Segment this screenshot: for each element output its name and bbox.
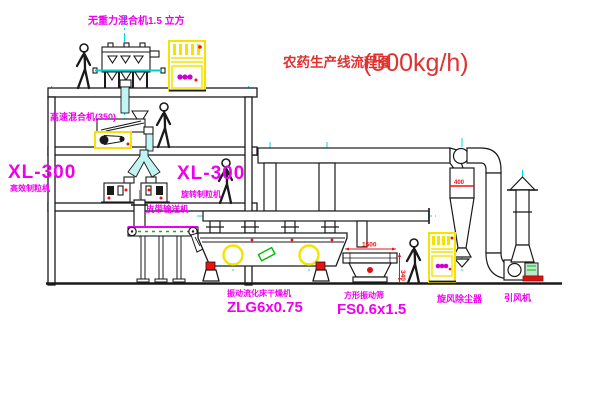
riser-right (319, 163, 335, 211)
eccentric-weight (367, 267, 373, 273)
control-cabinet-top (169, 41, 206, 91)
cad-flow-diagram: 400 1500 340 (0, 0, 600, 403)
label-screen-name: 方形振动筛 (344, 290, 384, 300)
label-granulator-mid-name: 旋转制粒机 (180, 189, 221, 199)
label-screen-model: FS0.6x1.5 (337, 301, 406, 318)
label-high-speed-mixer: 高速混合机(350) (50, 111, 116, 122)
label-belt-conveyor: 皮带输送机 (145, 204, 189, 214)
header-duct (258, 148, 450, 163)
feed-pipe (121, 87, 129, 113)
fan-base (523, 276, 543, 281)
screen-height-dim: 340 (399, 270, 406, 281)
label-granulator-left-name: 高效制粒机 (10, 183, 50, 193)
downcomer-pipe (486, 173, 501, 253)
diagram-svg: 400 1500 340 (0, 0, 600, 403)
stack-cap (510, 177, 535, 190)
indicator-dot (198, 45, 202, 49)
worker-figure-2 (157, 103, 170, 147)
label-cyclone: 旋风除尘器 (436, 293, 483, 304)
label-dryer-model: ZLG6x0.75 (227, 299, 303, 316)
control-cabinet-right (429, 233, 456, 282)
cyclone-flange-dim: 400 (454, 180, 465, 186)
riser-left (264, 163, 276, 211)
worker-figure-4 (407, 239, 420, 283)
diagram-capacity: (500kg/h) (363, 49, 469, 77)
belt-conveyor (128, 227, 205, 282)
gravity-free-mixer (93, 43, 165, 113)
label-dryer-name: 振动流化床干燥机 (227, 288, 291, 298)
conveyor-legs (137, 236, 185, 282)
label-fan: 引风机 (504, 292, 531, 303)
floor-slab-top (48, 88, 257, 97)
granulator-left (101, 177, 134, 203)
induced-draft-fan (504, 260, 543, 281)
label-granulator-mid-model: XL-300 (177, 163, 245, 184)
screen-length-dim: 1500 (362, 242, 377, 249)
vortex-finder (454, 149, 469, 164)
panel-knobs (177, 74, 192, 79)
worker-figure-1 (77, 44, 90, 88)
label-gravity-free-mixer: 无重力混合机1.5 立方 (87, 14, 185, 27)
fluid-bed-dryer (198, 233, 347, 281)
granulator-right (139, 177, 170, 203)
exhaust-stack (507, 177, 538, 262)
label-granulator-left-model: XL-300 (8, 162, 76, 183)
collector-duct (203, 211, 429, 221)
vibrating-screen: 1500 340 (343, 242, 406, 283)
